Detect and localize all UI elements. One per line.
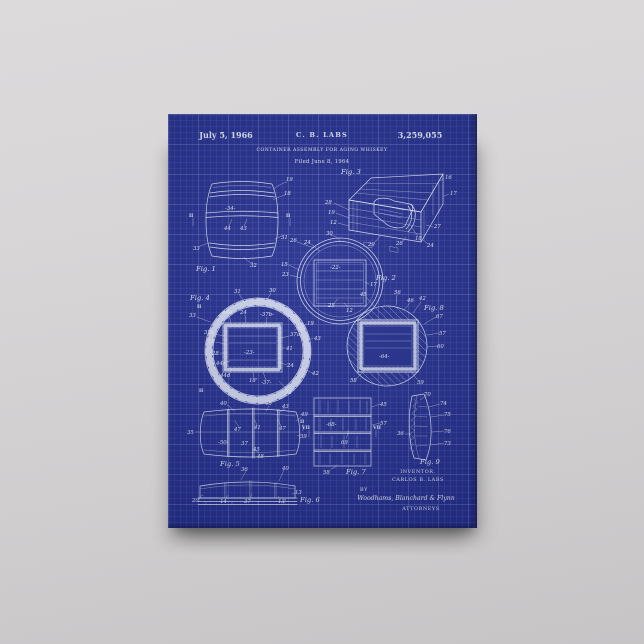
ref-numeral: 26: [395, 241, 403, 247]
patent-filed-date: Filed June 8, 1964: [295, 159, 350, 165]
figure-4-sectioned-end-view: Fig. 4 II II 31 30 33 44a 24 -37b- 19 37…: [189, 288, 321, 404]
ref-numeral: 17: [450, 191, 457, 197]
ref-numeral: -37b-: [260, 312, 274, 318]
patent-date: July 5, 1966: [198, 130, 253, 140]
ref-numeral: 40: [281, 466, 289, 472]
ref-numeral: 46: [264, 401, 272, 407]
ref-numeral: 32: [250, 263, 257, 269]
ref-numeral: 41: [285, 346, 293, 352]
ref-numeral: 76: [444, 429, 451, 435]
ref-numeral: -64-: [379, 354, 390, 360]
ref-numeral: 28: [324, 200, 332, 206]
ref-numeral: 45: [359, 292, 367, 298]
ref-numeral: 60: [437, 344, 444, 350]
section-marker: II: [197, 304, 201, 310]
ref-numeral: 33: [189, 313, 196, 319]
ref-numeral: 30: [326, 231, 333, 237]
ref-numeral: 20': [191, 498, 200, 504]
ref-numeral: 44: [223, 226, 231, 232]
section-marker: VII: [301, 425, 310, 431]
by-label: BY: [360, 487, 368, 493]
figure-2-end-view: 30 26 24 15 23 -22- 17 25 12 Fig. 2: [281, 231, 396, 324]
ref-numeral: 32: [285, 390, 292, 396]
ref-numeral: 37b: [204, 330, 215, 336]
wall-background: July 5, 1966 C. B. LABS 3,259,055 CONTAI…: [0, 0, 644, 644]
ref-numeral: 24: [426, 243, 434, 249]
section-marker: II: [199, 388, 203, 394]
section-marker: VII: [372, 425, 381, 431]
ref-numeral: 70: [424, 392, 431, 398]
figure-caption: Fig. 1: [195, 265, 216, 273]
ref-numeral: 12: [346, 308, 353, 314]
ref-numeral: 17: [370, 282, 377, 288]
ref-numeral: 19: [307, 321, 314, 327]
ref-numeral: 73: [444, 441, 451, 447]
ref-numeral: 57: [439, 331, 446, 337]
figure-caption: Fig. 6: [299, 496, 321, 504]
ref-numeral: 36: [241, 467, 248, 473]
figure-caption: Fig. 8: [423, 304, 445, 312]
ref-numeral: -22-: [330, 265, 341, 271]
ref-numeral: 59: [417, 380, 424, 386]
ref-numeral: 42: [311, 371, 319, 377]
ref-numeral: 57: [380, 421, 387, 427]
ref-numeral: -34-: [225, 206, 236, 212]
ref-numeral: 14: [220, 499, 227, 505]
ref-numeral: 24: [239, 310, 247, 316]
patent-footer: INVENTOR. CARLOS B. LABS BY Woodhams, Bl…: [357, 469, 454, 512]
ref-numeral: 24: [286, 363, 294, 369]
attorney-signature: Woodhams, Blanchard & Flynn: [357, 495, 454, 502]
ref-numeral: 29: [367, 242, 375, 248]
ref-numeral: 16: [445, 175, 452, 181]
section-marker: II: [300, 419, 304, 425]
ref-numeral: 19: [286, 177, 293, 183]
figure-6-plank-assembly: 36 40 13 20' 14 37 13' Fig. 6: [191, 466, 321, 505]
ref-numeral: 27: [433, 224, 441, 230]
ref-numeral: 31: [281, 235, 288, 241]
ref-numeral: 43: [281, 404, 289, 410]
ref-numeral: 18: [415, 236, 422, 242]
figure-8-hatched-end-view: 45 56 46 42 67 57 60 -64- 59 58 Fig. 8: [347, 290, 446, 386]
patent-header: July 5, 1966 C. B. LABS 3,259,055 CONTAI…: [198, 130, 442, 165]
ref-numeral: 74: [440, 401, 447, 407]
ref-numeral: 43: [313, 336, 321, 342]
ref-numeral: 67: [436, 314, 443, 320]
section-marker: II: [189, 213, 193, 219]
figure-caption: Fig. 5: [219, 460, 240, 468]
ref-numeral: 69: [341, 440, 348, 446]
patent-assignee: C. B. LABS: [296, 131, 348, 139]
ref-numeral: -23-: [244, 350, 255, 356]
ref-numeral: 35: [187, 430, 194, 436]
canvas-print: July 5, 1966 C. B. LABS 3,259,055 CONTAI…: [168, 114, 477, 528]
inventor-label: INVENTOR.: [400, 469, 436, 475]
ref-numeral: 13': [278, 499, 286, 505]
ref-numeral: 44c: [215, 361, 226, 367]
ref-numeral: 47: [278, 426, 286, 432]
ref-numeral: 37: [241, 441, 248, 447]
ref-numeral: 56: [394, 290, 401, 296]
figure-caption: Fig. 7: [345, 468, 367, 476]
patent-number: 3,259,055: [398, 130, 443, 140]
attorneys-label: ATTORNEYS: [401, 506, 439, 512]
figure-7-stave-panel: 45 57 -68- 69 58 VII VII Fig. 7: [301, 398, 387, 476]
ref-numeral: 18: [208, 339, 215, 345]
ref-numeral: 47: [233, 427, 241, 433]
ref-numeral: 37a: [290, 332, 300, 338]
ref-numeral: -37-: [261, 380, 272, 386]
ref-numeral: 58: [323, 470, 330, 476]
ref-numeral: 30: [269, 288, 276, 294]
ref-numeral: 49: [300, 412, 308, 418]
ref-numeral: 24: [303, 240, 311, 246]
figure-1-barrel-side-view: 19 18 -34- 44 43 II II 31 33 32 Fig. 1: [189, 177, 293, 273]
ref-numeral: 42: [418, 296, 426, 302]
ref-numeral: 43: [239, 226, 247, 232]
figure-caption: Fig. 4: [189, 294, 210, 302]
figure-9-stave-cross-section: 70 74 75 76 73 36 Fig. 9: [397, 392, 451, 466]
ref-numeral: 40: [219, 401, 227, 407]
ref-numeral: 31: [234, 289, 241, 295]
ref-numeral: 37: [244, 499, 251, 505]
figure-caption: Fig. 2: [375, 274, 396, 282]
ref-numeral: 23: [281, 272, 289, 278]
ref-numeral: -50-: [218, 440, 229, 446]
ref-numeral: 28: [211, 351, 219, 357]
ref-numeral: 58: [350, 378, 357, 384]
ref-numeral: 75: [444, 412, 451, 418]
ref-numeral: 33: [193, 246, 200, 252]
ref-numeral: 41: [253, 425, 261, 431]
ref-numeral: 45: [379, 402, 387, 408]
patent-title: CONTAINER ASSEMBLY FOR AGING WHISKEY: [256, 147, 388, 153]
ref-numeral: 18': [249, 378, 257, 384]
ref-numeral: 12: [330, 220, 337, 226]
ref-numeral: 18: [284, 191, 291, 197]
patent-drawing: July 5, 1966 C. B. LABS 3,259,055 CONTAI…: [168, 114, 477, 528]
inventor-name: CARLOS B. LABS: [392, 477, 444, 483]
figure-3-crate-isometric: Fig. 3 16 17 28 19 12 27 18 29 24 26: [324, 168, 457, 253]
figure-5-stave-barrel: 40 46 43 47 41 47 -50- 37 45 48 35 49 II…: [187, 401, 308, 468]
ref-numeral: 44a: [221, 310, 232, 316]
ref-numeral: 26: [289, 238, 297, 244]
ref-numeral: 36: [397, 431, 404, 437]
ref-numeral: 25: [327, 303, 335, 309]
figure-caption: Fig. 9: [419, 458, 441, 466]
ref-numeral: 15: [281, 262, 288, 268]
ref-numeral: 46: [406, 298, 414, 304]
ref-numeral: 48: [256, 454, 264, 460]
section-marker: II: [286, 213, 290, 219]
ref-numeral: 39: [300, 434, 307, 440]
ref-numeral: 44d: [219, 373, 231, 379]
figure-caption: Fig. 3: [340, 168, 361, 176]
ref-numeral: 19: [328, 210, 335, 216]
ref-numeral: 45: [252, 447, 260, 453]
ref-numeral: -68-: [326, 422, 337, 428]
